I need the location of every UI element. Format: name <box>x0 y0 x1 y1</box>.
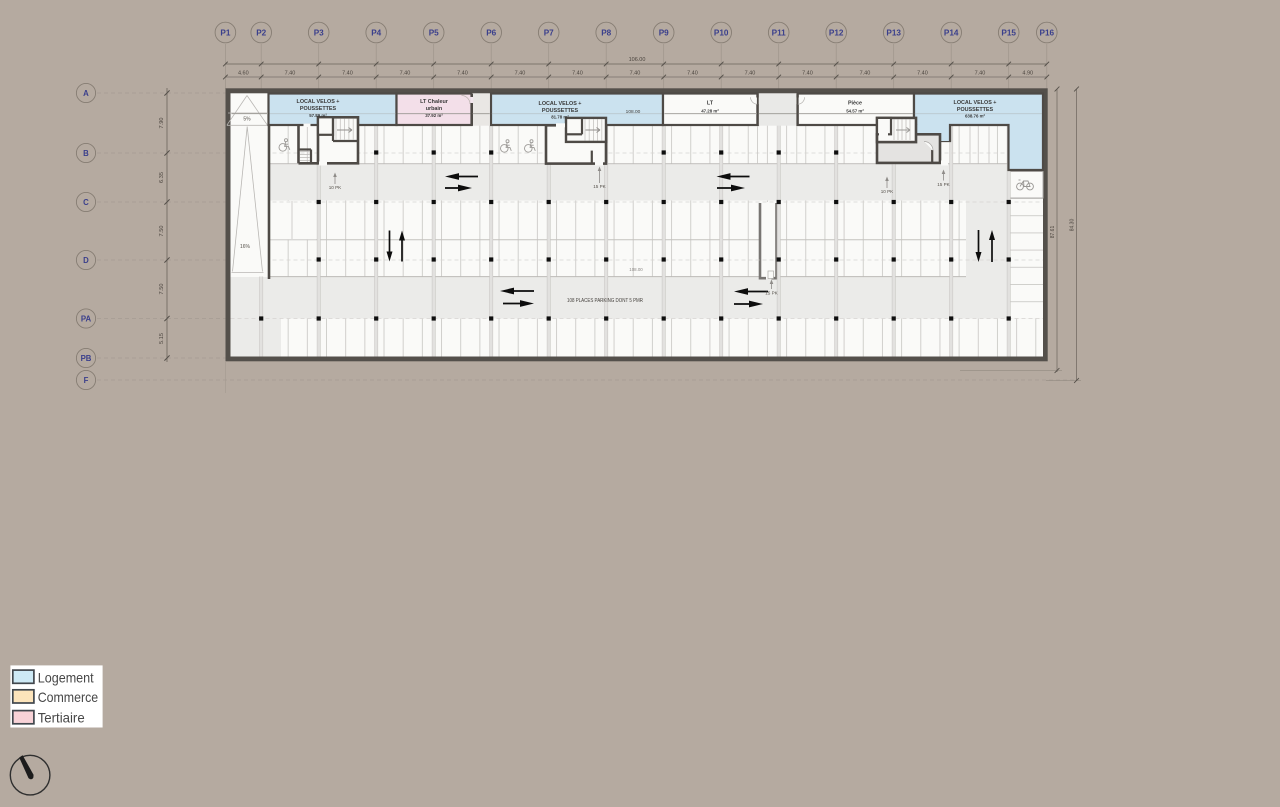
svg-text:87.61: 87.61 <box>1050 226 1056 239</box>
svg-text:15 PK: 15 PK <box>593 184 606 189</box>
svg-text:7.40: 7.40 <box>572 71 583 77</box>
svg-text:LT Chaleur: LT Chaleur <box>420 99 449 105</box>
svg-text:7.40: 7.40 <box>802 71 813 77</box>
svg-text:10 PK: 10 PK <box>881 189 894 194</box>
svg-text:P10: P10 <box>714 29 729 38</box>
svg-text:Pièce: Pièce <box>848 101 862 107</box>
svg-text:P14: P14 <box>944 29 959 38</box>
svg-text:D: D <box>83 256 89 265</box>
svg-text:C: C <box>83 198 89 207</box>
svg-text:Logement: Logement <box>38 670 94 686</box>
svg-text:84.30: 84.30 <box>1070 219 1076 232</box>
svg-text:PA: PA <box>81 314 92 323</box>
svg-text:108.00: 108.00 <box>626 109 641 115</box>
svg-text:P12: P12 <box>829 29 844 38</box>
svg-text:F: F <box>84 376 89 385</box>
svg-text:638.76 m²: 638.76 m² <box>965 114 986 119</box>
svg-text:7.40: 7.40 <box>917 71 928 77</box>
svg-text:7.40: 7.40 <box>975 71 986 77</box>
svg-text:7.40: 7.40 <box>285 71 296 77</box>
svg-text:7.40: 7.40 <box>687 71 698 77</box>
svg-text:P1: P1 <box>220 29 230 38</box>
svg-text:108 PLACES PARKING DONT 5 PMR: 108 PLACES PARKING DONT 5 PMR <box>567 298 643 304</box>
svg-text:16%: 16% <box>240 244 251 250</box>
svg-text:P5: P5 <box>429 29 439 38</box>
svg-text:LOCAL VELOS +: LOCAL VELOS + <box>954 100 997 106</box>
svg-text:6.35: 6.35 <box>159 172 165 183</box>
svg-text:57.89 m²: 57.89 m² <box>309 113 327 118</box>
svg-text:Tertiaire: Tertiaire <box>38 709 85 725</box>
svg-text:Commerce: Commerce <box>38 689 99 705</box>
svg-text:5%: 5% <box>243 117 251 123</box>
svg-text:7.40: 7.40 <box>515 71 526 77</box>
svg-text:81.78 m²: 81.78 m² <box>551 115 569 120</box>
svg-text:LT: LT <box>707 101 714 107</box>
svg-text:7.50: 7.50 <box>159 284 165 295</box>
svg-text:POUSSETTES: POUSSETTES <box>957 107 994 113</box>
svg-text:P7: P7 <box>544 29 554 38</box>
svg-text:P15: P15 <box>1001 29 1016 38</box>
svg-text:7.50: 7.50 <box>159 226 165 237</box>
svg-text:P8: P8 <box>601 29 611 38</box>
svg-text:7.40: 7.40 <box>400 71 411 77</box>
svg-text:10 PK: 10 PK <box>329 185 342 190</box>
svg-text:54.57 m²: 54.57 m² <box>846 109 864 114</box>
svg-text:LOCAL VELOS +: LOCAL VELOS + <box>539 101 582 107</box>
svg-text:POUSSETTES: POUSSETTES <box>542 108 579 114</box>
svg-text:37.92 m²: 37.92 m² <box>425 113 443 118</box>
svg-text:7.40: 7.40 <box>342 71 353 77</box>
svg-text:LOCAL VELOS +: LOCAL VELOS + <box>297 99 340 105</box>
svg-text:P9: P9 <box>659 29 669 38</box>
svg-text:106.00: 106.00 <box>629 57 646 63</box>
svg-text:7.40: 7.40 <box>745 71 756 77</box>
svg-text:7.40: 7.40 <box>630 71 641 77</box>
svg-text:P4: P4 <box>371 29 381 38</box>
svg-text:15 PK: 15 PK <box>765 291 778 296</box>
svg-text:A: A <box>83 89 89 98</box>
svg-text:108.00: 108.00 <box>629 267 643 272</box>
svg-text:urbain: urbain <box>426 106 442 112</box>
svg-text:7.90: 7.90 <box>159 118 165 129</box>
svg-text:POUSSETTES: POUSSETTES <box>300 106 337 112</box>
svg-text:7.40: 7.40 <box>457 71 468 77</box>
svg-text:15 PK: 15 PK <box>937 182 950 187</box>
svg-text:PB: PB <box>81 354 92 363</box>
svg-text:4.60: 4.60 <box>238 71 249 77</box>
svg-text:P3: P3 <box>314 29 324 38</box>
svg-text:P13: P13 <box>886 29 901 38</box>
svg-text:B: B <box>83 149 89 158</box>
svg-text:7.40: 7.40 <box>860 71 871 77</box>
svg-text:P2: P2 <box>256 29 266 38</box>
svg-text:47.28 m²: 47.28 m² <box>701 109 719 114</box>
svg-text:5.15: 5.15 <box>159 333 165 344</box>
svg-text:4.90: 4.90 <box>1022 71 1033 77</box>
svg-text:P11: P11 <box>772 29 787 38</box>
svg-text:P16: P16 <box>1040 29 1055 38</box>
svg-text:P6: P6 <box>486 29 496 38</box>
